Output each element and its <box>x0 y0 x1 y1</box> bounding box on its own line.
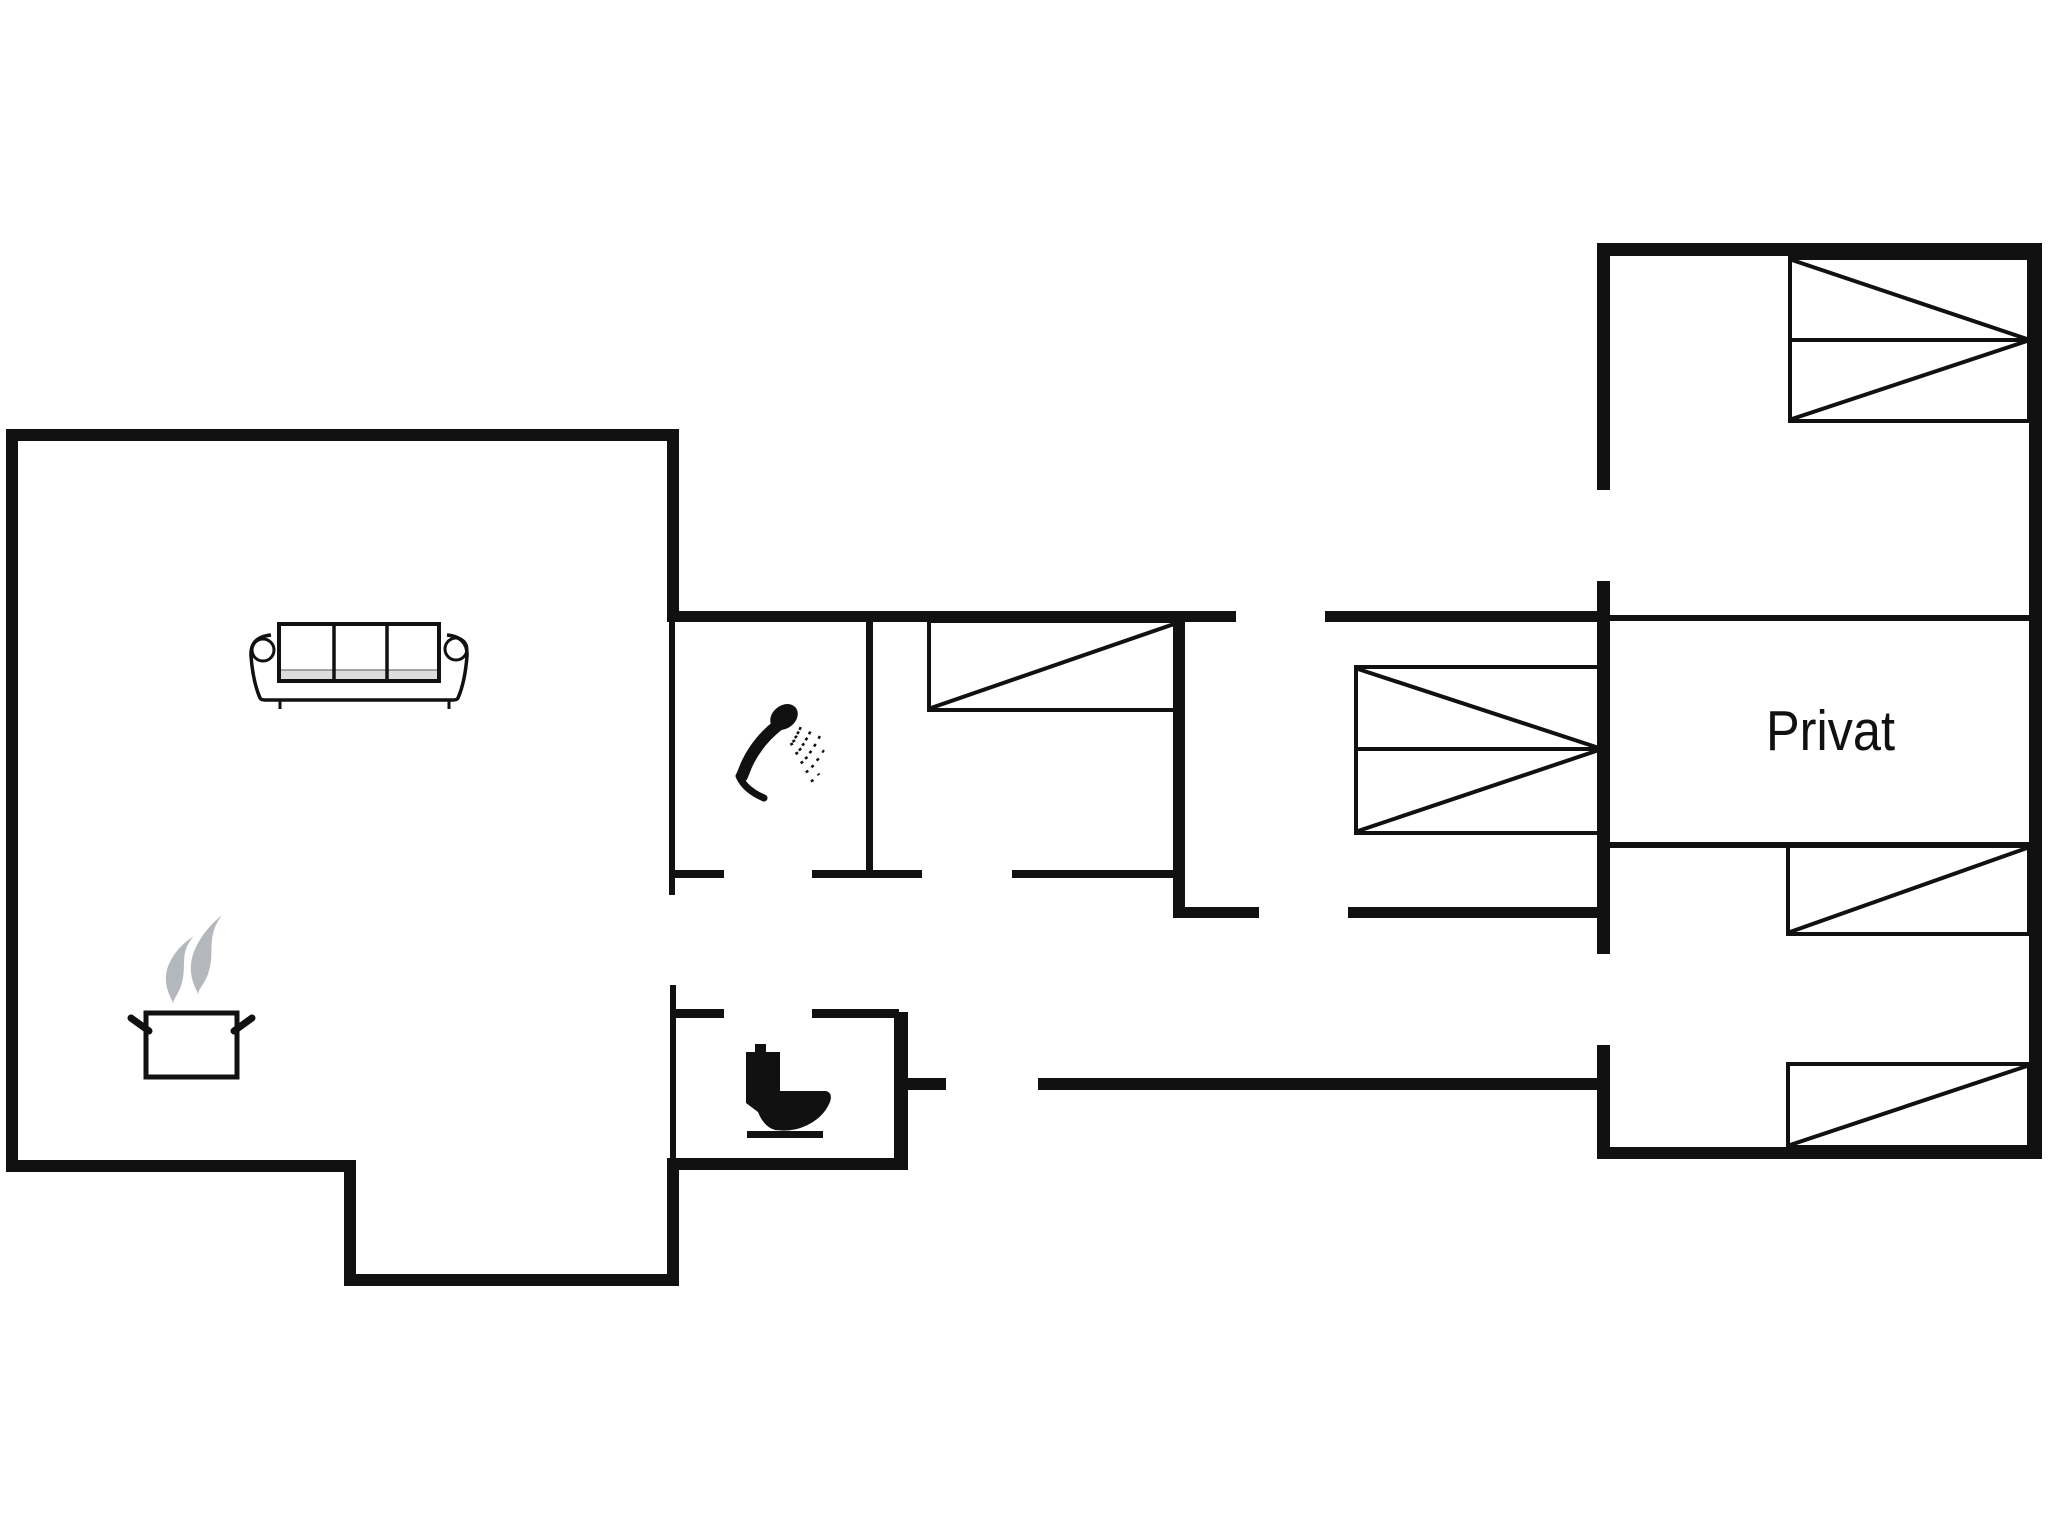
svg-text:Privat: Privat <box>1766 699 1895 763</box>
